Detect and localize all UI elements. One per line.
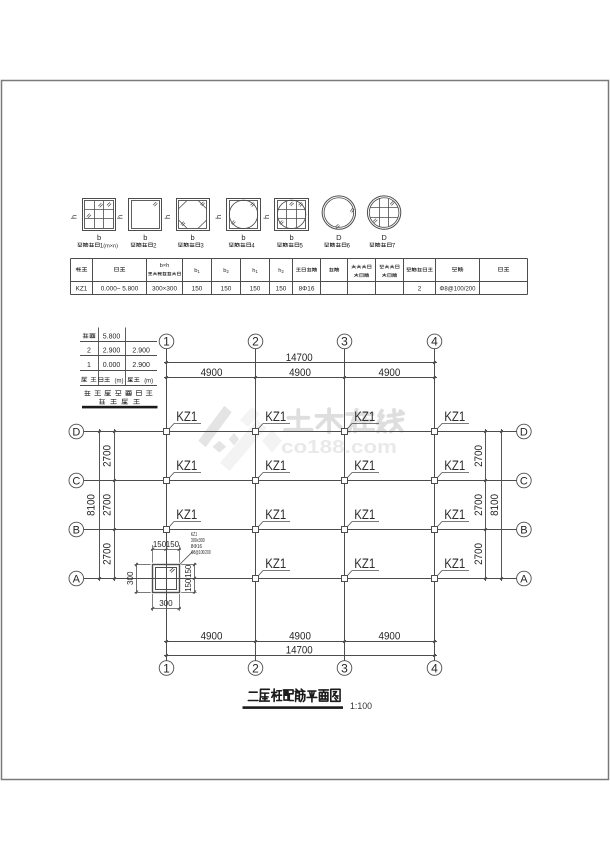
svg-text:2: 2 <box>153 243 157 249</box>
svg-text:KZ1: KZ1 <box>354 555 375 571</box>
svg-text:4900: 4900 <box>201 367 223 379</box>
svg-text:Φ8@100/200: Φ8@100/200 <box>191 550 211 556</box>
svg-text:KZ1: KZ1 <box>444 408 465 424</box>
svg-text:(m): (m) <box>144 378 153 384</box>
svg-text:150: 150 <box>250 285 261 292</box>
svg-text:C: C <box>520 476 528 488</box>
svg-text:2.900: 2.900 <box>132 362 150 369</box>
svg-text:A: A <box>73 574 81 586</box>
svg-text:KZ1: KZ1 <box>444 506 465 522</box>
svg-text:150: 150 <box>276 285 287 292</box>
svg-text:KZ1: KZ1 <box>354 408 375 424</box>
svg-text:A: A <box>520 574 528 586</box>
svg-text:4900: 4900 <box>289 630 311 642</box>
svg-text:C: C <box>72 476 80 488</box>
svg-text:B: B <box>520 525 527 537</box>
svg-text:4900: 4900 <box>201 630 223 642</box>
svg-text:KZ1: KZ1 <box>354 457 375 473</box>
svg-text:150: 150 <box>183 579 193 592</box>
svg-text:h: h <box>70 215 79 219</box>
svg-text:KZ1: KZ1 <box>354 506 375 522</box>
svg-text:KZ1: KZ1 <box>444 457 465 473</box>
svg-text:8100: 8100 <box>86 494 98 516</box>
svg-text:D: D <box>72 427 80 439</box>
svg-text:KZ1: KZ1 <box>265 457 286 473</box>
svg-text:2700: 2700 <box>101 445 113 467</box>
svg-text:4: 4 <box>251 243 255 249</box>
svg-text:1: 1 <box>87 362 91 369</box>
svg-text:4900: 4900 <box>379 630 401 642</box>
svg-text:b: b <box>290 233 294 242</box>
svg-text:h: h <box>262 215 271 219</box>
svg-text:6: 6 <box>347 243 351 249</box>
svg-text:300: 300 <box>159 598 173 608</box>
svg-text:KZ1: KZ1 <box>265 408 286 424</box>
svg-text:4900: 4900 <box>379 367 401 379</box>
svg-text:150: 150 <box>153 539 166 549</box>
svg-text:co188.com: co188.com <box>281 437 397 457</box>
svg-text:4: 4 <box>431 661 438 675</box>
svg-text:KZ1: KZ1 <box>76 285 88 292</box>
svg-text:7: 7 <box>392 243 396 249</box>
svg-text:1: 1 <box>163 661 170 675</box>
svg-text:0.000~ 5.800: 0.000~ 5.800 <box>101 285 139 292</box>
svg-text:14700: 14700 <box>286 352 313 364</box>
svg-text:8100: 8100 <box>489 494 501 516</box>
svg-text:Φ8@100/200: Φ8@100/200 <box>440 286 477 292</box>
svg-text:0.000: 0.000 <box>103 362 121 369</box>
svg-text:2: 2 <box>252 661 259 675</box>
svg-text:D: D <box>381 233 387 242</box>
svg-text:300: 300 <box>125 571 135 585</box>
svg-text:KZ1: KZ1 <box>176 506 197 522</box>
svg-text:3: 3 <box>200 243 204 249</box>
svg-text:2700: 2700 <box>101 543 113 565</box>
svg-text:KZ1: KZ1 <box>444 555 465 571</box>
svg-text:2: 2 <box>252 335 259 349</box>
svg-text:b: b <box>143 233 147 242</box>
svg-text:150: 150 <box>221 285 232 292</box>
svg-text:h: h <box>116 215 125 219</box>
svg-text:8Φ16: 8Φ16 <box>299 285 315 292</box>
svg-text:h2: h2 <box>278 268 284 274</box>
svg-text:2700: 2700 <box>473 543 485 565</box>
svg-text:2700: 2700 <box>473 445 485 467</box>
svg-text:1: 1 <box>163 335 170 349</box>
svg-text:150: 150 <box>192 285 203 292</box>
svg-text:b1: b1 <box>194 268 200 274</box>
svg-text:b: b <box>191 233 195 242</box>
svg-text:4: 4 <box>431 335 438 349</box>
svg-text:3: 3 <box>341 661 348 675</box>
svg-text:3: 3 <box>341 335 348 349</box>
svg-text:150: 150 <box>166 539 179 549</box>
svg-text:D: D <box>336 233 342 242</box>
svg-text:4900: 4900 <box>289 367 311 379</box>
svg-text:5.800: 5.800 <box>103 334 121 341</box>
svg-text:(m): (m) <box>115 378 124 384</box>
svg-text:h1: h1 <box>252 268 258 274</box>
svg-text:(m×n): (m×n) <box>103 243 118 249</box>
svg-text:h: h <box>163 215 172 219</box>
svg-text:KZ1: KZ1 <box>265 555 286 571</box>
svg-text:1:100: 1:100 <box>350 701 372 712</box>
svg-text:b×h: b×h <box>160 263 170 269</box>
svg-text:300×300: 300×300 <box>152 285 178 292</box>
svg-text:2700: 2700 <box>473 494 485 516</box>
svg-text:b2: b2 <box>223 268 229 274</box>
svg-text:B: B <box>73 525 80 537</box>
svg-text:2.900: 2.900 <box>132 348 150 355</box>
svg-text:b: b <box>241 233 245 242</box>
svg-text:h: h <box>214 215 223 219</box>
svg-text:KZ1: KZ1 <box>265 506 286 522</box>
svg-text:KZ1: KZ1 <box>176 408 197 424</box>
svg-text:b: b <box>97 233 101 242</box>
svg-text:2: 2 <box>87 348 91 355</box>
svg-text:KZ1: KZ1 <box>176 457 197 473</box>
svg-text:2: 2 <box>418 285 422 292</box>
svg-text:2700: 2700 <box>101 494 113 516</box>
svg-text:150: 150 <box>183 565 193 578</box>
svg-text:2.900: 2.900 <box>103 348 121 355</box>
svg-text:14700: 14700 <box>286 644 313 656</box>
svg-text:D: D <box>520 427 528 439</box>
svg-text:5: 5 <box>300 243 304 249</box>
